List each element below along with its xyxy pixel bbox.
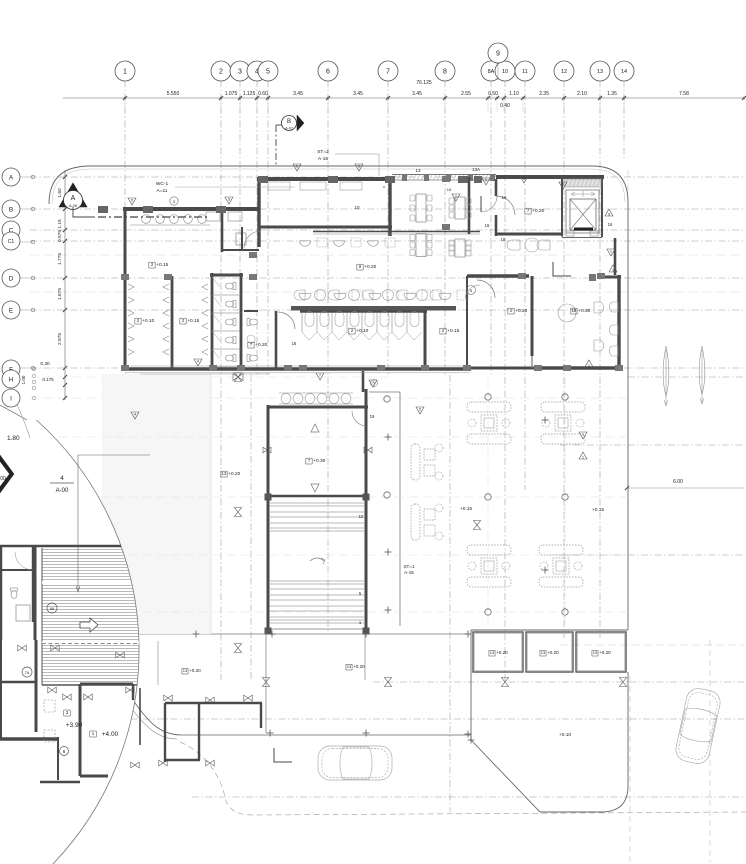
svg-text:B: B [287, 119, 291, 125]
svg-text:C1: C1 [8, 239, 15, 245]
svg-text:13: 13 [597, 69, 603, 75]
svg-text:10: 10 [354, 205, 360, 210]
svg-text:1.075: 1.075 [225, 91, 238, 97]
svg-text:2.975: 2.975 [57, 333, 63, 345]
svg-text:0.50: 0.50 [488, 91, 498, 97]
svg-text:5: 5 [131, 199, 133, 203]
svg-text:1: 1 [612, 269, 614, 273]
svg-text:2: 2 [137, 318, 140, 323]
svg-text:+0.20: +0.20 [189, 668, 201, 673]
svg-text:2: 2 [351, 328, 354, 333]
svg-text:1.35: 1.35 [607, 91, 617, 97]
svg-text:+0.10: +0.10 [356, 328, 368, 334]
svg-text:D: D [9, 275, 14, 282]
svg-text:2.35: 2.35 [539, 91, 549, 97]
svg-text:7: 7 [527, 208, 530, 213]
svg-text:A: A [71, 195, 76, 202]
svg-text:1: 1 [610, 250, 612, 254]
svg-text:13: 13 [415, 168, 421, 173]
svg-text:3: 3 [173, 199, 176, 204]
svg-text:+0.20: +0.20 [532, 208, 544, 214]
svg-text:A-07: A-07 [285, 127, 293, 131]
svg-text:7: 7 [308, 458, 311, 463]
svg-text:1: 1 [123, 69, 127, 76]
svg-text:19: 19 [370, 414, 375, 419]
svg-text:+3.90: +3.90 [66, 722, 83, 729]
svg-text:1.125: 1.125 [243, 91, 256, 97]
svg-text:13: 13 [347, 664, 352, 669]
svg-text:+0.20: +0.20 [496, 650, 508, 655]
svg-text:1: 1 [582, 433, 584, 437]
svg-text:+0.30: +0.30 [313, 458, 325, 464]
svg-text:7.58: 7.58 [679, 91, 689, 97]
svg-text:1.775: 1.775 [57, 253, 63, 265]
svg-text:2: 2 [442, 328, 445, 333]
svg-text:76.125: 76.125 [416, 80, 432, 86]
svg-text:13: 13 [183, 668, 188, 673]
svg-text:4: 4 [60, 475, 64, 482]
svg-text:+0.10: +0.10 [142, 318, 154, 324]
svg-text:1.00: 1.00 [21, 375, 26, 384]
svg-text:5: 5 [608, 213, 610, 217]
svg-text:1.675: 1.675 [57, 288, 63, 300]
svg-text:2.55: 2.55 [461, 91, 471, 97]
svg-text:1: 1 [582, 456, 584, 460]
svg-text:A-15: A-15 [404, 570, 414, 575]
svg-text:1: 1 [359, 620, 362, 625]
svg-text:13A: 13A [472, 167, 480, 172]
svg-text:9: 9 [496, 51, 500, 58]
svg-text:8: 8 [443, 69, 447, 76]
svg-text:1.60: 1.60 [57, 188, 63, 198]
svg-text:0.60: 0.60 [258, 91, 268, 97]
svg-text:+0.15: +0.15 [156, 262, 168, 268]
svg-text:+0.20: +0.20 [364, 264, 376, 270]
svg-text:A: A [9, 174, 14, 181]
svg-text:+0.30: +0.30 [578, 308, 590, 314]
svg-text:13: 13 [541, 650, 546, 655]
svg-text:5: 5 [562, 183, 564, 187]
svg-text:5: 5 [228, 198, 230, 202]
svg-text:6: 6 [326, 69, 330, 76]
svg-text:A=11: A=11 [157, 188, 168, 194]
svg-text:7: 7 [372, 381, 374, 385]
svg-text:16: 16 [608, 222, 613, 227]
svg-text:5: 5 [419, 408, 421, 412]
svg-text:7: 7 [319, 374, 321, 378]
svg-text:16: 16 [485, 223, 490, 228]
svg-text:00: 00 [0, 476, 6, 482]
svg-text:+0.15: +0.15 [187, 318, 199, 324]
svg-text:5.550: 5.550 [167, 91, 180, 97]
svg-text:8A: 8A [488, 69, 495, 75]
svg-text:2: 2 [151, 262, 154, 267]
svg-text:13: 13 [593, 650, 598, 655]
svg-text:+0.15: +0.15 [460, 506, 472, 512]
svg-text:3.45: 3.45 [353, 91, 363, 97]
svg-text:B: B [9, 206, 13, 213]
svg-text:4: 4 [134, 413, 136, 417]
svg-text:0.175: 0.175 [42, 377, 54, 382]
svg-text:0.575: 0.575 [57, 230, 63, 242]
svg-text:1.15: 1.15 [57, 219, 63, 229]
svg-text:+0.20: +0.20 [599, 650, 611, 655]
svg-text:A-15: A-15 [318, 156, 328, 162]
svg-text:3.45: 3.45 [293, 91, 303, 97]
svg-text:2: 2 [219, 69, 223, 76]
svg-text:14: 14 [621, 69, 627, 75]
svg-text:5: 5 [266, 69, 270, 76]
svg-text:E: E [9, 307, 14, 314]
svg-text:15: 15 [572, 308, 577, 313]
svg-text:13: 13 [222, 471, 227, 476]
svg-text:+0.20: +0.20 [228, 471, 240, 477]
svg-text:7: 7 [386, 69, 390, 76]
svg-text:5: 5 [358, 165, 360, 169]
svg-text:0.30: 0.30 [40, 361, 50, 367]
svg-text:+4.00: +4.00 [102, 731, 119, 738]
svg-text:+0.15: +0.15 [592, 507, 604, 513]
svg-text:7A: 7A [25, 671, 30, 675]
svg-text:1.80: 1.80 [7, 435, 20, 442]
svg-text:2: 2 [182, 318, 185, 323]
svg-text:+0.15: +0.15 [447, 328, 459, 334]
svg-text:8A: 8A [50, 607, 55, 611]
svg-text:1.10: 1.10 [509, 91, 519, 97]
svg-text:H: H [9, 376, 14, 383]
svg-text:19: 19 [501, 237, 506, 242]
svg-text:+0.20: +0.20 [547, 650, 559, 655]
svg-text:3: 3 [238, 69, 242, 76]
svg-text:1: 1 [588, 364, 590, 368]
svg-text:5: 5 [296, 165, 298, 169]
svg-text:+0.20: +0.20 [353, 664, 365, 669]
svg-text:A-00: A-00 [56, 488, 69, 494]
svg-text:ST=2: ST=2 [317, 149, 329, 155]
svg-text:1: 1 [485, 179, 487, 183]
svg-text:2: 2 [510, 308, 513, 313]
svg-text:15: 15 [447, 187, 452, 192]
svg-text:WC-1: WC-1 [156, 181, 169, 187]
svg-text:19: 19 [502, 195, 507, 200]
svg-text:+0.10: +0.10 [559, 732, 571, 738]
svg-text:11: 11 [522, 69, 528, 75]
svg-text:10: 10 [502, 69, 508, 75]
svg-text:10: 10 [359, 514, 364, 519]
svg-text:0.40: 0.40 [500, 103, 510, 109]
svg-text:1: 1 [523, 177, 525, 181]
svg-text:v: v [383, 184, 385, 189]
svg-text:6.00: 6.00 [673, 479, 683, 485]
svg-text:I: I [10, 395, 12, 402]
svg-text:4: 4 [197, 360, 199, 364]
svg-text:3.45: 3.45 [412, 91, 422, 97]
svg-text:16: 16 [292, 341, 297, 346]
svg-text:13: 13 [490, 650, 495, 655]
svg-text:12: 12 [561, 69, 567, 75]
svg-text:+0.20: +0.20 [515, 308, 527, 314]
svg-text:8: 8 [359, 264, 362, 269]
svg-text:ST=1: ST=1 [403, 564, 415, 569]
svg-text:1: 1 [455, 195, 457, 199]
svg-text:2.10: 2.10 [577, 91, 587, 97]
svg-text:+0.20: +0.20 [255, 342, 267, 348]
